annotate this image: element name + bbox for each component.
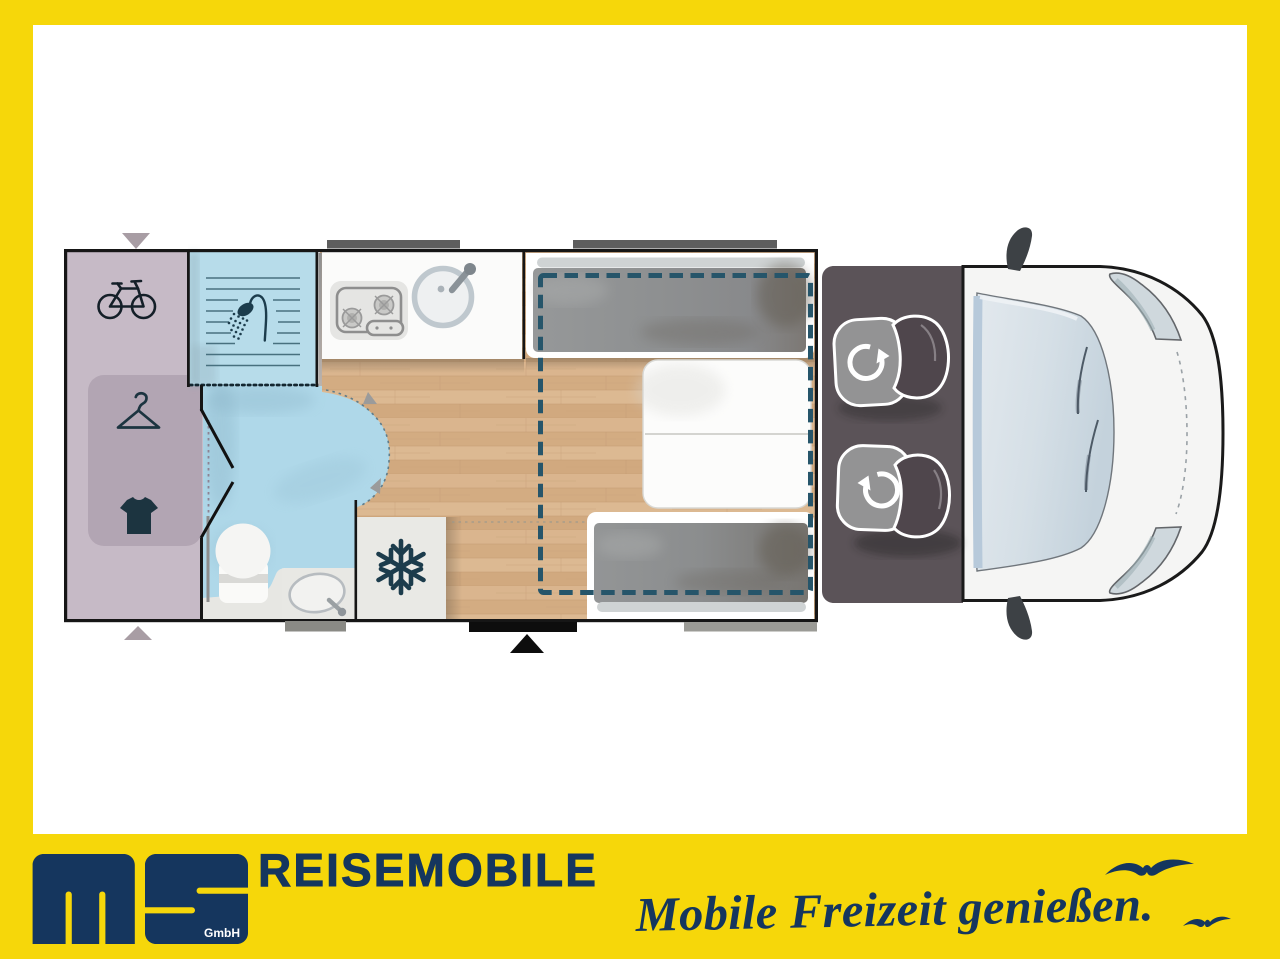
svg-text:REISEMOBILE: REISEMOBILE xyxy=(258,844,598,896)
svg-text:Mobile Freizeit genießen.: Mobile Freizeit genießen. xyxy=(634,878,1154,942)
svg-text:GmbH: GmbH xyxy=(204,926,240,940)
